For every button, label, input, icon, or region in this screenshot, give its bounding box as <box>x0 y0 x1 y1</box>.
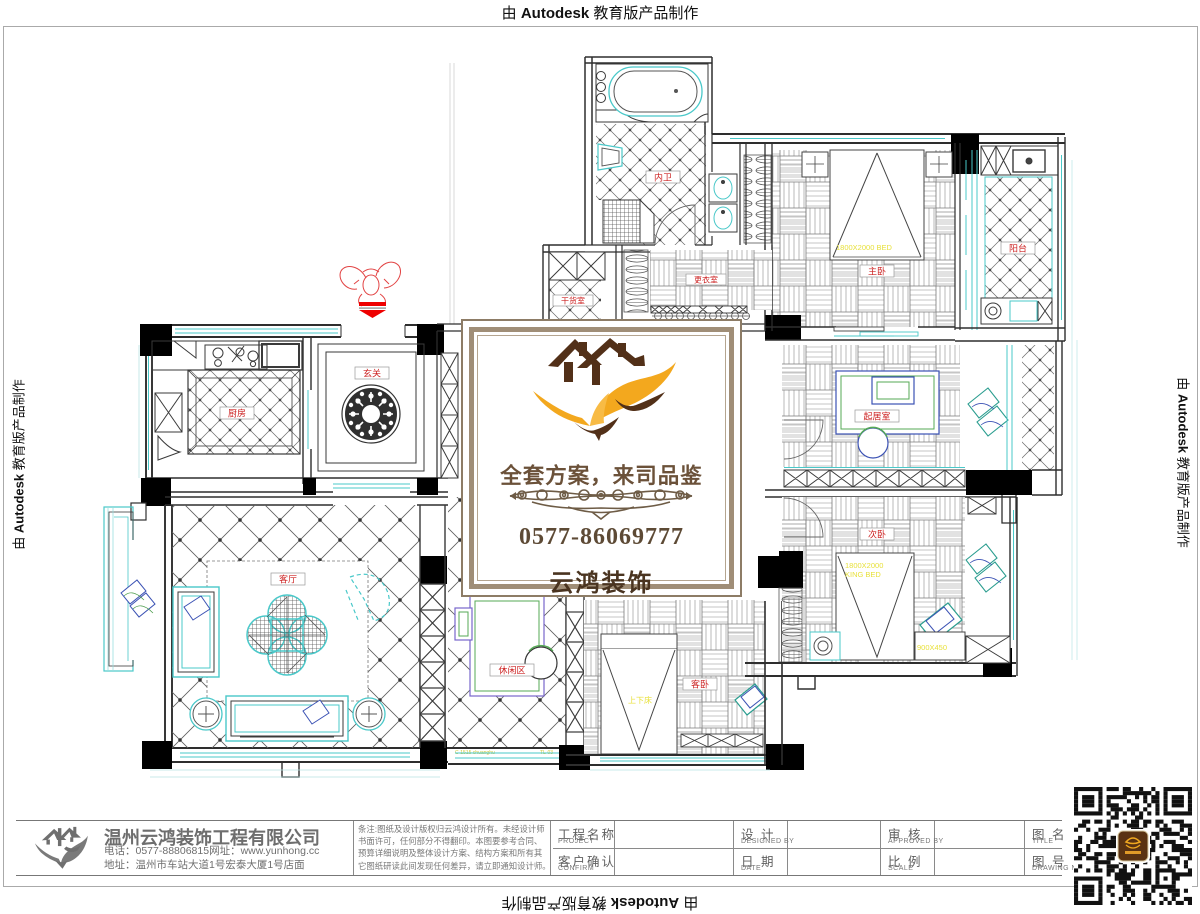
svg-text:更衣室: 更衣室 <box>694 275 718 285</box>
svg-text:阳台: 阳台 <box>1009 243 1027 254</box>
svg-text:玄关: 玄关 <box>363 368 381 379</box>
svg-text:休闲区: 休闲区 <box>498 665 525 676</box>
svg-text:客卧: 客卧 <box>691 679 709 690</box>
svg-text:起居室: 起居室 <box>863 411 890 422</box>
svg-text:内卫: 内卫 <box>654 172 672 183</box>
svg-text:主卧: 主卧 <box>868 266 886 277</box>
svg-text:1800X2000: 1800X2000 <box>845 561 883 570</box>
svg-text:1800X2000 BED: 1800X2000 BED <box>836 243 892 252</box>
svg-text:900X450: 900X450 <box>917 643 947 652</box>
svg-text:次卧: 次卧 <box>868 529 886 540</box>
svg-text:KING BED: KING BED <box>845 570 881 579</box>
svg-text:上下床: 上下床 <box>628 695 652 705</box>
svg-text:客厅: 客厅 <box>279 574 297 585</box>
svg-text:厨房: 厨房 <box>228 408 246 419</box>
svg-text:干货室: 干货室 <box>561 296 585 306</box>
